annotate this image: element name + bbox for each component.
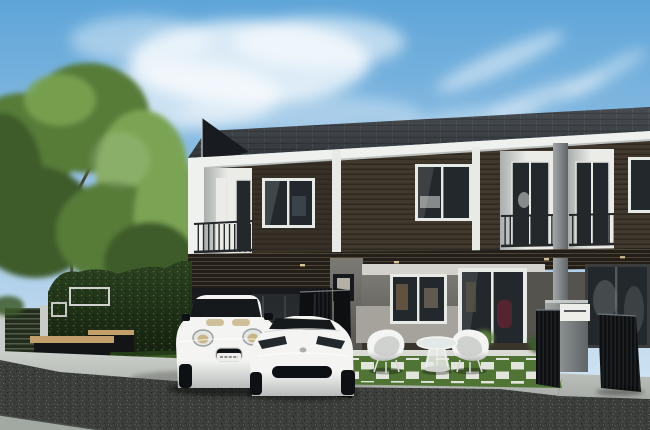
- mini-hood-vent: [206, 319, 224, 326]
- balcony-a-railing: [502, 216, 553, 246]
- balcony-bay-b: [568, 149, 614, 251]
- rendering-stage: [0, 0, 650, 430]
- coupe-wheel-left: [250, 372, 262, 395]
- unit1-balcony-railing: [194, 221, 253, 252]
- scene-architectural-rendering: [0, 0, 650, 430]
- balcony-b-railing: [570, 215, 614, 245]
- unit3-partial-window: [628, 157, 650, 213]
- unit1-window: [262, 178, 315, 228]
- mini-windshield: [190, 299, 261, 317]
- lower-pillar: [553, 258, 568, 306]
- hanging-chair-maroon: [497, 300, 512, 328]
- unit2-corner-trim: [472, 147, 480, 255]
- ground-window: [390, 274, 447, 324]
- mailbox: [560, 304, 590, 321]
- balcony-bay-a: [500, 151, 553, 251]
- coupe-wheel-right: [341, 370, 355, 395]
- bench-seat: [30, 336, 114, 343]
- carport-canopy: [188, 252, 345, 292]
- mini-mirror: [264, 313, 273, 320]
- entry-gate-left: [536, 310, 560, 388]
- mini-wheel-left: [179, 364, 192, 388]
- upper-pillar: [553, 143, 568, 260]
- unit1-corner-trim: [332, 150, 341, 256]
- unit2-window-upper: [415, 164, 472, 221]
- coupe-emblem: [300, 347, 307, 352]
- coupe-intake: [272, 366, 332, 378]
